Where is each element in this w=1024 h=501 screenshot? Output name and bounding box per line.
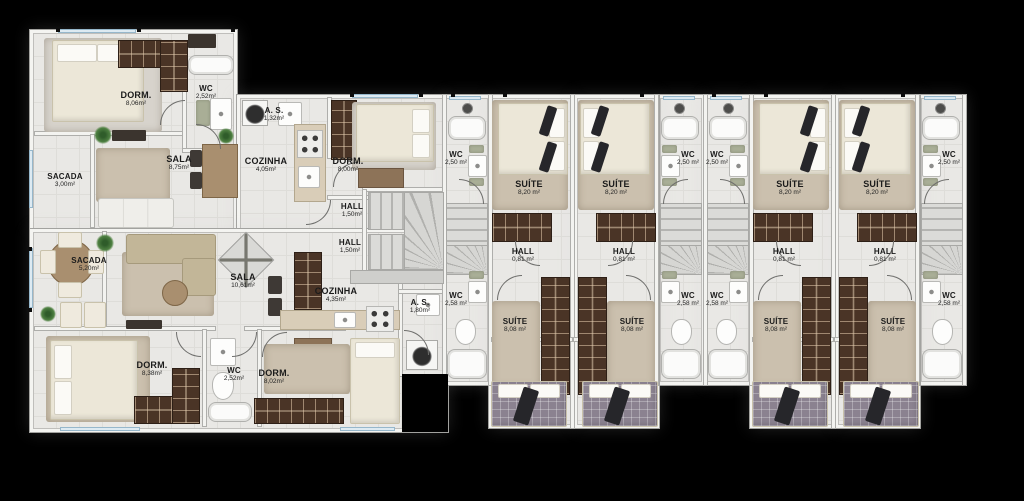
window [340, 427, 395, 431]
room-label-suite-lower: SUÍTE 8,08 m² [491, 317, 539, 334]
rug [753, 301, 801, 387]
chair [58, 282, 82, 298]
wall [363, 188, 445, 191]
room-label-suite-lower: SUÍTE 8,08 m² [752, 317, 800, 334]
tick [231, 28, 235, 32]
room-label-cozinha2: COZINHA 4,35m² [306, 286, 366, 304]
rug [607, 301, 655, 387]
single-bed [350, 338, 400, 424]
room-label-sacada2: SACADA 5,20m² [62, 256, 116, 273]
room-label-wc-upper: WC 2,50 m² [936, 150, 962, 167]
toilet [671, 319, 692, 345]
room-label-suite-upper: SUÍTE 8,20 m² [849, 179, 905, 197]
room-label-suite-upper: SUÍTE 8,20 m² [762, 179, 818, 197]
room-label-suite-upper: SUÍTE 8,20 m² [588, 179, 644, 197]
toilet [932, 319, 953, 345]
wardrobe [254, 398, 344, 424]
dining-table [202, 144, 238, 198]
unit-bath-strip: WC 2,50 m² WC 2,58 m² [918, 95, 966, 385]
room-label-wc-lower: WC 2,58 m² [675, 291, 701, 308]
bathroom-sink [468, 155, 487, 177]
tick [503, 93, 507, 97]
bathtub [447, 349, 487, 379]
window [663, 96, 695, 100]
tick [451, 93, 455, 97]
wardrobe [541, 277, 570, 395]
room-label-cozinha1: COZINHA 4,05m² [238, 156, 294, 174]
wall [399, 290, 444, 293]
chair [268, 276, 282, 294]
shower-tray [448, 116, 486, 140]
rug [868, 301, 916, 387]
wardrobe [160, 40, 188, 92]
stair-winder [404, 192, 444, 270]
bathtub [661, 349, 701, 379]
plant [94, 126, 112, 144]
unit-bath-strip: WC 2,50 m² WC 2,58 m² [443, 95, 491, 385]
room-label-as2: A. S. 1,80m² [398, 298, 442, 315]
armchair [84, 302, 106, 328]
room-label-wc-lower: WC 2,58 m² [443, 291, 469, 308]
window [29, 150, 33, 208]
bath-mat [662, 271, 677, 279]
wardrobe [753, 213, 813, 242]
room-label-wc-upper: WC 2,50 m² [443, 150, 469, 167]
shower-head [463, 104, 472, 113]
townhouse-unit-4: WC 2,50 m² WC 2,58 m² [835, 95, 966, 432]
room-label-wc-upper: WC 2,50 m² [704, 150, 730, 167]
suite-bed-lower [752, 381, 828, 427]
room-label-suite-lower: SUÍTE 8,08 m² [869, 317, 917, 334]
single-bed [356, 104, 434, 162]
stove [366, 306, 394, 332]
bathtub [922, 349, 962, 379]
plant [40, 306, 56, 322]
room-label-as1: A. S. 1,32m² [252, 106, 296, 123]
dresser [188, 34, 216, 48]
room-label-suite-upper: SUÍTE 8,20 m² [501, 179, 557, 197]
shower-head [936, 104, 945, 113]
room-label-sala1: SALA 8,75m² [154, 154, 204, 172]
toilet [716, 319, 737, 345]
tv-cabinet [112, 130, 146, 141]
window [58, 29, 136, 33]
suite-bed [841, 103, 911, 175]
room-label-hall: HALL 0,81 m² [861, 247, 909, 264]
townhouse-unit-3: WC 2,50 m² WC 2,58 m² [704, 95, 835, 432]
wall [963, 95, 966, 385]
wardrobe [578, 277, 607, 395]
chair [40, 250, 56, 274]
room-label-sacada1: SACADA 3,00m² [38, 172, 92, 189]
shower-tray [709, 116, 747, 140]
tick [28, 308, 32, 312]
tick [56, 28, 60, 32]
tick [712, 93, 716, 97]
suite-bed [498, 103, 568, 175]
chair [58, 232, 82, 248]
tick [28, 247, 32, 251]
window [924, 96, 956, 100]
suite-bed-lower [491, 381, 567, 427]
shower-head [724, 104, 733, 113]
tv-cabinet [126, 320, 162, 329]
rug [492, 301, 540, 387]
room-label-hall1: HALL 1,50m² [330, 202, 374, 219]
room-label-hall: HALL 0,81 m² [499, 247, 547, 264]
room-label-hall: HALL 0,81 m² [760, 247, 808, 264]
room-label-dorm4: DORM. 8,02m² [248, 368, 300, 386]
unit-main: SUÍTE 8,20 m² HALL 0,81 m² SUÍTE 8,08 m² [574, 95, 658, 428]
townhouse-unit-1: WC 2,50 m² WC 2,58 m² [443, 95, 574, 432]
shower-tray [188, 55, 234, 75]
floor-plan-canvas: DORM. 8,06m² WC 2,52m² A. S. 1,32m² SALA… [0, 0, 1024, 501]
armchair [60, 302, 82, 328]
tick [640, 93, 644, 97]
wardrobe [839, 277, 868, 395]
room-label-wc1: WC 2,52m² [186, 84, 226, 101]
double-bed [50, 340, 138, 420]
room-label-suite-lower: SUÍTE 8,08 m² [608, 317, 656, 334]
unit-main: SUÍTE 8,20 m² HALL 0,81 m² SUÍTE 8,08 m² [750, 95, 835, 428]
unit-bath-strip: WC 2,50 m² WC 2,58 m² [657, 95, 705, 385]
stair-landing [350, 270, 444, 284]
window [60, 427, 140, 431]
shower-head [675, 104, 684, 113]
room-label-dorm1: DORM. 8,06m² [108, 90, 164, 108]
bathtub [708, 349, 748, 379]
bathroom-sink [468, 281, 487, 303]
unit-main: SUÍTE 8,20 m² HALL 0,81 m² SUÍTE 8,08 m² [489, 95, 574, 428]
stove [297, 130, 323, 158]
bath-mat [923, 271, 938, 279]
room-label-hall: HALL 0,81 m² [600, 247, 648, 264]
room-label-wc-lower: WC 2,58 m² [936, 291, 962, 308]
bathroom-sink [729, 155, 748, 177]
wall [203, 330, 206, 426]
suite-bed [580, 103, 650, 175]
plan-notch [402, 374, 448, 432]
room-label-sala2: SALA 10,61m² [218, 272, 268, 290]
shower-tray [208, 402, 252, 422]
suite-bed-lower [582, 381, 658, 427]
room-label-dorm2: DORM. 8,00m² [322, 156, 374, 174]
bath-mat [469, 271, 484, 279]
window [29, 248, 33, 308]
coffee-table [162, 280, 188, 306]
townhouse-unit-2: WC 2,50 m² WC 2,58 m² [574, 95, 705, 432]
room-label-wc-lower: WC 2,58 m² [704, 291, 730, 308]
tick [137, 28, 141, 32]
room-label-dorm3: DORM. 8,38m² [126, 360, 178, 378]
toilet [455, 319, 476, 345]
plant [96, 234, 114, 252]
suite-bed [759, 103, 829, 175]
room-label-wc-upper: WC 2,50 m² [675, 150, 701, 167]
window [352, 94, 418, 98]
bath-mat [730, 271, 745, 279]
wall [571, 95, 574, 428]
wardrobe [492, 213, 552, 242]
bathroom-sink [729, 281, 748, 303]
suite-bed-lower [843, 381, 919, 427]
bath-mat [196, 100, 210, 126]
bath-mat [730, 145, 745, 153]
unit-main: SUÍTE 8,20 m² HALL 0,81 m² SUÍTE 8,08 m² [835, 95, 919, 428]
shower-tray [922, 116, 960, 140]
tick [901, 93, 905, 97]
wardrobe [802, 277, 831, 395]
sofa [98, 198, 174, 228]
chair [190, 172, 202, 189]
tick [350, 93, 354, 97]
kitchen-sink [334, 312, 356, 328]
wardrobe [596, 213, 656, 242]
plant [218, 128, 234, 144]
tick [764, 93, 768, 97]
room-label-hall2: HALL 1,50m² [328, 238, 372, 255]
wardrobe [857, 213, 917, 242]
bath-mat [469, 145, 484, 153]
shower-tray [661, 116, 699, 140]
tick [419, 93, 423, 97]
unit-bath-strip: WC 2,50 m² WC 2,58 m² [704, 95, 752, 385]
wall [832, 95, 835, 428]
kitchen-sink [298, 166, 320, 188]
bathroom-sink [210, 98, 232, 130]
